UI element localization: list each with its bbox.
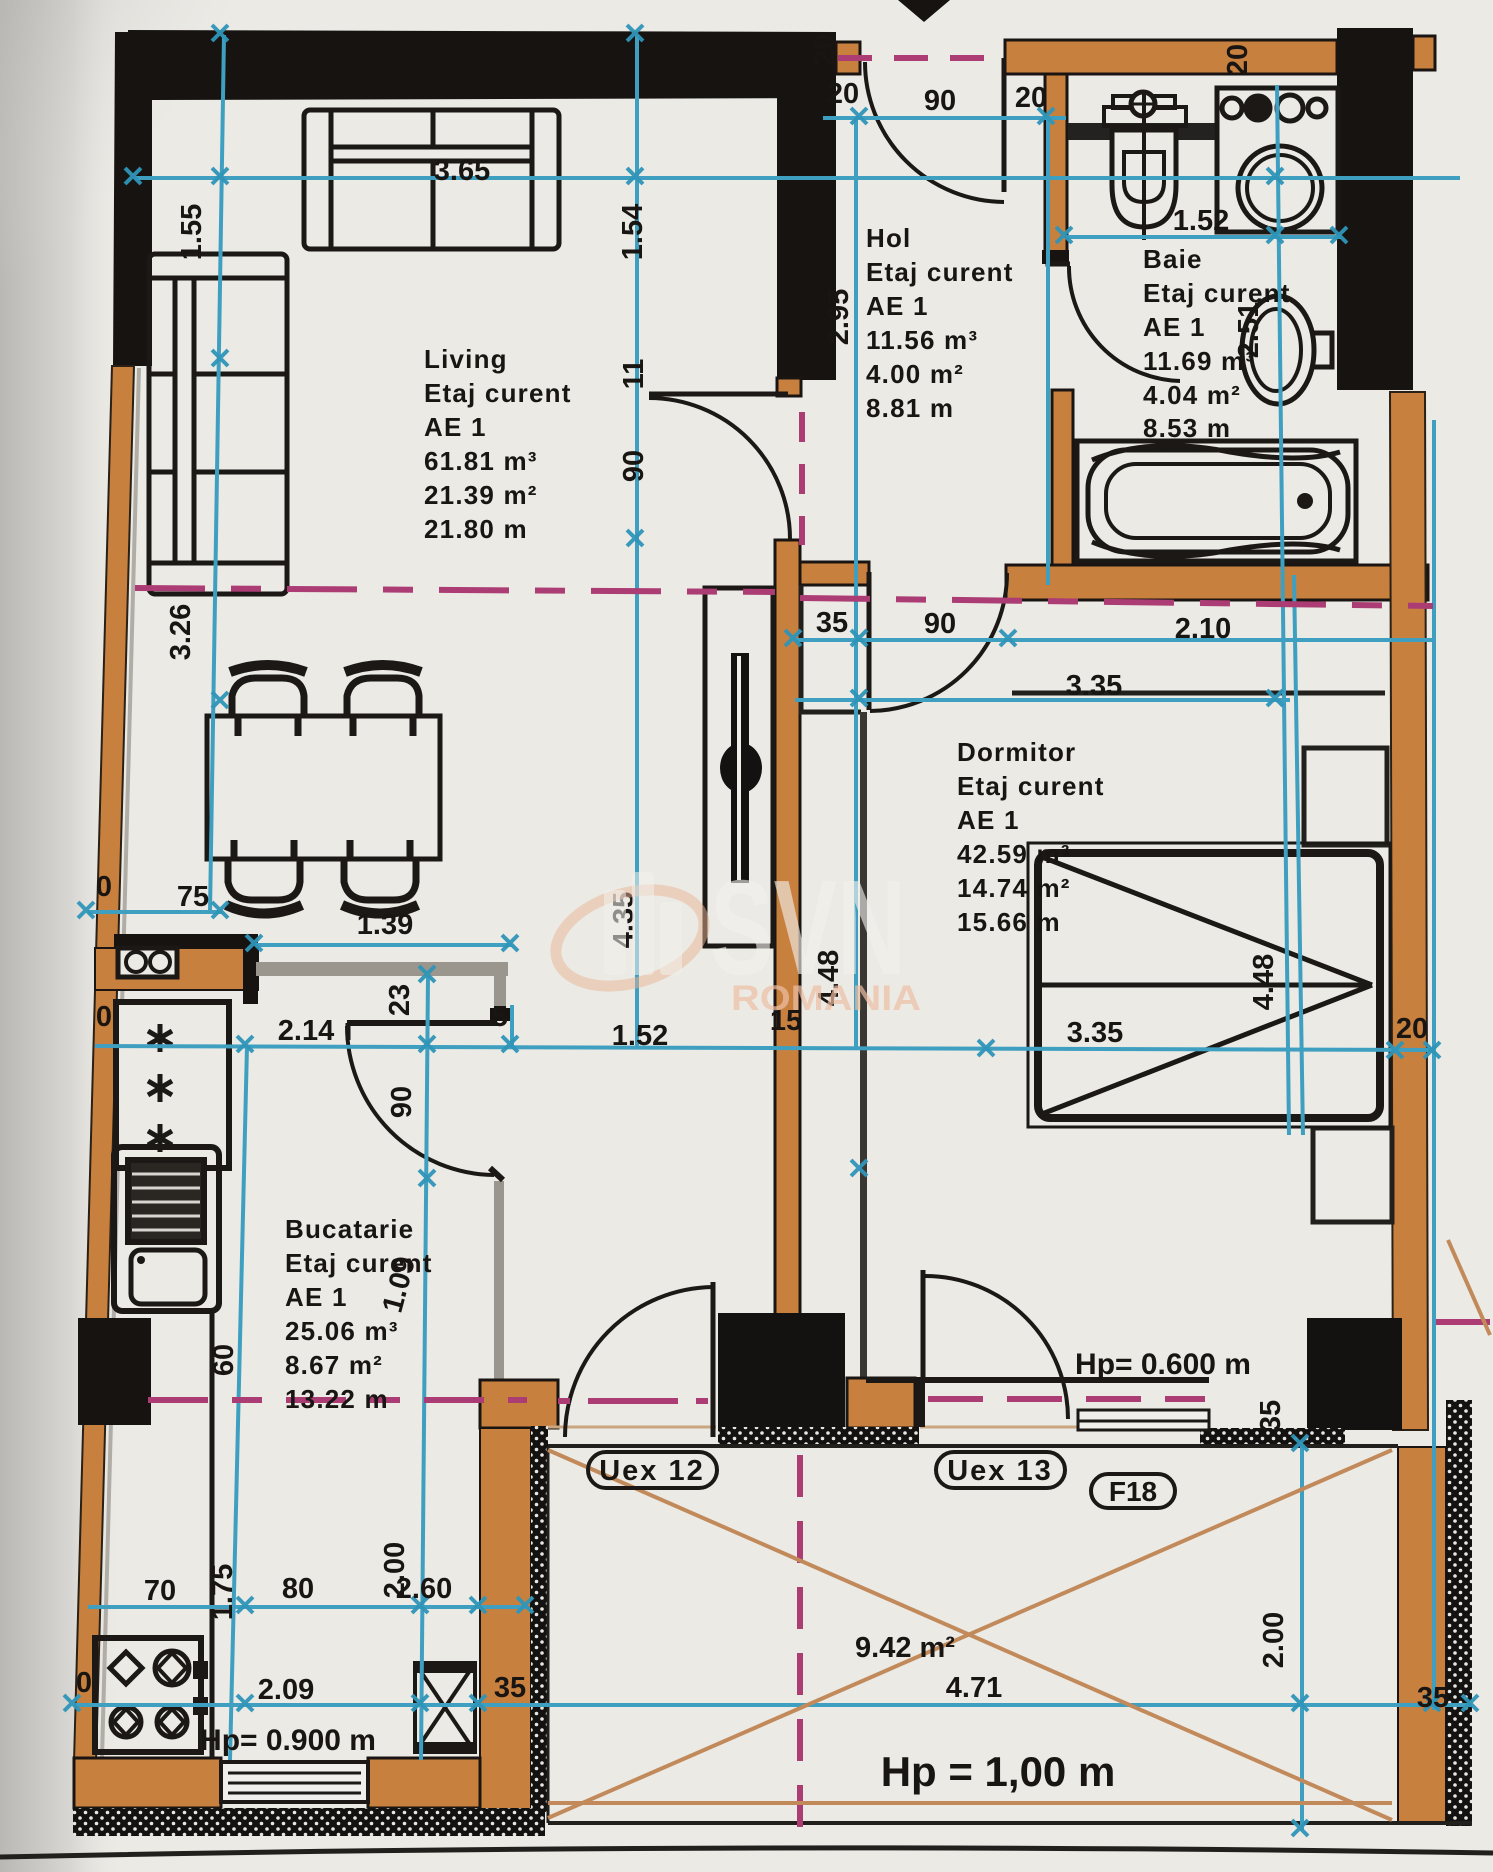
svg-text:35: 35 [816,607,848,639]
svg-text:35: 35 [1255,1400,1287,1432]
svg-text:Etaj curent: Etaj curent [866,257,1014,287]
svg-text:2.00: 2.00 [1258,1612,1290,1668]
svg-text:8.67 m²: 8.67 m² [285,1350,383,1380]
svg-text:25.06 m³: 25.06 m³ [285,1316,399,1346]
svg-text:4.48: 4.48 [1248,954,1280,1010]
svg-text:3.35: 3.35 [1067,1017,1123,1049]
svg-text:0: 0 [76,1667,92,1699]
svg-text:60: 60 [208,1344,240,1376]
svg-text:Baie: Baie [1143,244,1203,274]
svg-text:42.59 m³: 42.59 m³ [957,839,1071,869]
svg-text:0: 0 [96,1001,112,1033]
svg-text:1.54: 1.54 [617,204,649,260]
svg-text:3.65: 3.65 [434,155,490,187]
svg-text:1.75: 1.75 [207,1564,239,1620]
svg-text:Etaj curent: Etaj curent [1143,278,1291,308]
svg-text:Living: Living [424,344,508,374]
svg-text:1.39: 1.39 [357,909,413,941]
svg-text:23: 23 [384,984,416,1016]
svg-text:Etaj curent: Etaj curent [957,771,1105,801]
svg-text:AE 1: AE 1 [957,805,1020,835]
svg-text:Dormitor: Dormitor [957,737,1076,767]
svg-text:9.42 m²: 9.42 m² [855,1632,955,1664]
svg-text:Hp= 0.900 m: Hp= 0.900 m [200,1724,376,1757]
svg-text:2.60: 2.60 [396,1573,452,1605]
svg-text:1.52: 1.52 [612,1020,668,1052]
svg-text:90: 90 [386,1086,418,1118]
svg-text:Hol: Hol [866,223,911,253]
svg-text:4.00 m²: 4.00 m² [866,359,964,389]
svg-text:AE 1: AE 1 [1143,312,1206,342]
svg-text:AE 1: AE 1 [285,1282,348,1312]
svg-text:8.81 m: 8.81 m [866,393,954,423]
svg-text:3.26: 3.26 [165,604,197,660]
svg-text:AE 1: AE 1 [866,291,929,321]
svg-text:35: 35 [1417,1682,1449,1714]
svg-text:8.53 m: 8.53 m [1143,413,1231,443]
svg-text:Hp = 1,00 m: Hp = 1,00 m [881,1748,1116,1795]
svg-text:15.66 m: 15.66 m [957,907,1061,937]
svg-text:Etaj curent: Etaj curent [424,378,572,408]
svg-text:Uex 13: Uex 13 [947,1455,1053,1487]
svg-text:20: 20 [1015,82,1047,114]
svg-text:11: 11 [618,359,650,390]
svg-text:3.35: 3.35 [1066,670,1122,702]
svg-text:2.95: 2.95 [823,289,855,345]
svg-text:75: 75 [177,881,209,913]
svg-text:4.04 m²: 4.04 m² [1143,380,1241,410]
svg-text:Bucatarie: Bucatarie [285,1214,414,1244]
svg-text:21.80 m: 21.80 m [424,514,528,544]
svg-text:4.71: 4.71 [946,1672,1002,1704]
svg-text:5: 5 [492,1001,508,1033]
svg-text:21.39 m²: 21.39 m² [424,480,538,510]
svg-text:0: 0 [96,871,112,903]
svg-text:70: 70 [144,1575,176,1607]
svg-text:20: 20 [809,34,841,66]
svg-text:2.09: 2.09 [258,1674,314,1706]
svg-text:61.81 m³: 61.81 m³ [424,446,538,476]
svg-text:35: 35 [494,1672,526,1704]
svg-text:90: 90 [924,608,956,640]
svg-text:F18: F18 [1109,1476,1157,1507]
svg-text:20: 20 [1396,1013,1428,1045]
svg-text:2.10: 2.10 [1175,613,1231,645]
svg-text:80: 80 [282,1573,314,1605]
svg-text:Hp= 0.600 m: Hp= 0.600 m [1075,1348,1251,1381]
svg-text:ROMANIA: ROMANIA [731,979,921,1018]
svg-text:14.74 m²: 14.74 m² [957,873,1071,903]
svg-text:AE 1: AE 1 [424,412,487,442]
svg-text:20: 20 [1222,44,1254,76]
svg-text:13.22 m: 13.22 m [285,1384,389,1414]
svg-text:20: 20 [827,78,859,110]
svg-text:2.14: 2.14 [278,1015,334,1047]
svg-text:1.55: 1.55 [176,204,208,260]
svg-text:90: 90 [924,85,956,117]
svg-text:2.51: 2.51 [1233,302,1265,358]
svg-text:11.56 m³: 11.56 m³ [866,325,978,355]
svg-text:90: 90 [618,450,650,482]
svg-text:Uex 12: Uex 12 [599,1455,705,1487]
svg-text:1.52: 1.52 [1173,205,1229,237]
